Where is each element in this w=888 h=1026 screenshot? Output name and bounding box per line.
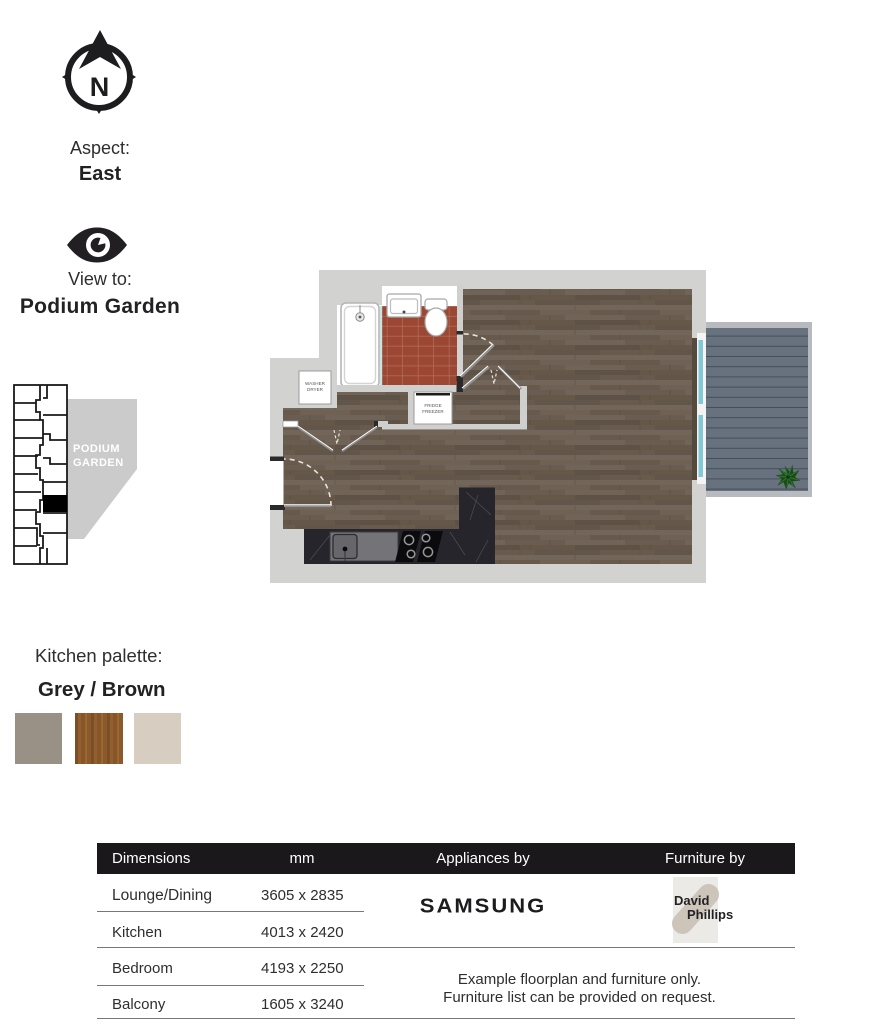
svg-text:DRYER: DRYER — [307, 387, 324, 392]
svg-text:WASHER: WASHER — [305, 381, 326, 386]
svg-text:PODIUM: PODIUM — [73, 443, 120, 455]
svg-text:GARDEN: GARDEN — [73, 457, 124, 469]
svg-text:FRIDGE: FRIDGE — [424, 403, 441, 408]
svg-text:N: N — [90, 72, 110, 102]
svg-text:FREEZER: FREEZER — [422, 409, 444, 414]
